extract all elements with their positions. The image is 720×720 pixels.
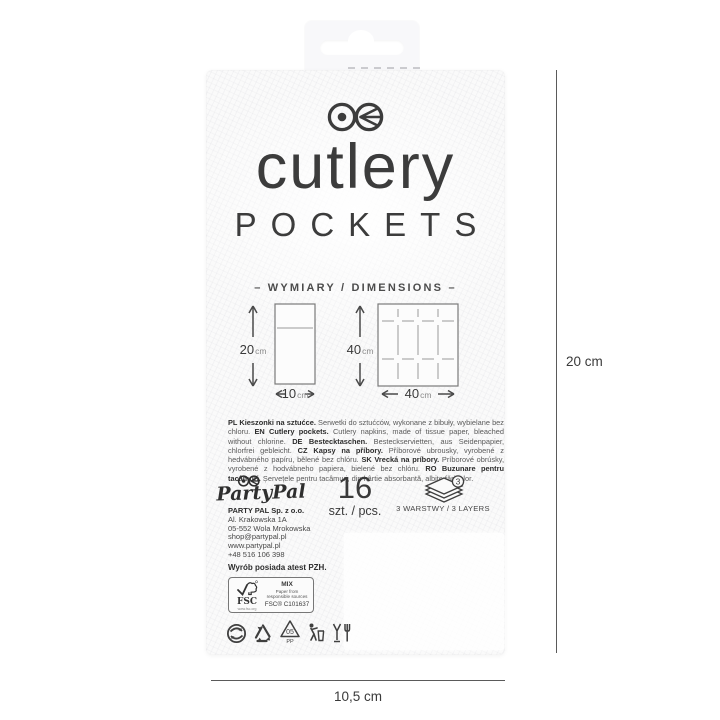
package-front: cutlery POCKETS – WYMIARY / DIMENSIONS –… — [206, 70, 505, 655]
fsc-grade: MIX — [262, 581, 312, 589]
svg-text:PP: PP — [286, 639, 294, 644]
piece-count-value: 16 — [322, 473, 388, 503]
pzh-certificate-note: Wyrób posiada atest PZH. — [228, 563, 327, 572]
pocket-outline — [275, 304, 315, 384]
dimensions-diagram: 20cm 10cm 40cm — [220, 300, 480, 405]
three-layers-icon: 3 — [418, 475, 470, 505]
plate-and-fork-icon — [326, 99, 386, 135]
fsc-acronym: FSC — [234, 598, 260, 607]
resin-code-pp-icon: 05 PP — [279, 619, 301, 644]
product-title: cutlery — [206, 134, 505, 200]
pocket-height-label: 20cm — [240, 342, 267, 357]
piece-count: 16 szt. / pcs. — [322, 473, 388, 518]
piece-count-unit: szt. / pcs. — [322, 504, 388, 518]
width-dimension-label: 10,5 cm — [211, 689, 505, 704]
height-dimension-line — [556, 70, 557, 653]
fsc-tree-icon — [236, 580, 258, 598]
fsc-source-text: responsible sources — [262, 594, 312, 599]
svg-text:3: 3 — [456, 476, 461, 486]
layers-label: 3 WARSTWY / 3 LAYERS — [384, 504, 502, 513]
partypal-logo-script: PartyPal — [212, 480, 311, 505]
euro-slot-hole — [320, 40, 404, 55]
dimensions-heading: – WYMIARY / DIMENSIONS – — [206, 282, 505, 294]
glass-fork-food-safe-icon — [331, 622, 352, 644]
svg-text:05: 05 — [286, 629, 294, 636]
phone-line: +48 516 106 398 — [228, 551, 310, 560]
napkin-stack-window — [344, 533, 504, 650]
napkin-width-label: 40cm — [405, 386, 432, 401]
product-photo: cutlery POCKETS – WYMIARY / DIMENSIONS –… — [0, 0, 720, 720]
green-dot-icon — [226, 623, 247, 644]
company-address: PARTY PAL Sp. z o.o. Al. Krakowska 1A 05… — [228, 507, 310, 560]
napkin-height-label: 40cm — [347, 342, 374, 357]
pocket-width-label: 10cm — [282, 386, 309, 401]
recycling-mobius-icon — [252, 623, 274, 644]
product-subtitle: POCKETS — [206, 206, 505, 244]
perforation-dashes — [348, 67, 420, 69]
width-dimension-line — [211, 680, 505, 681]
fsc-license-code: FSC® C101637 — [262, 600, 312, 609]
hang-tab — [305, 21, 419, 71]
fsc-url: www.fsc.org — [234, 607, 260, 611]
packaging-icons-row: 05 PP — [226, 619, 352, 644]
height-dimension-label: 20 cm — [566, 354, 603, 369]
tidy-man-icon — [306, 622, 326, 644]
fsc-label: FSC www.fsc.org MIX Paper from responsib… — [228, 577, 314, 613]
